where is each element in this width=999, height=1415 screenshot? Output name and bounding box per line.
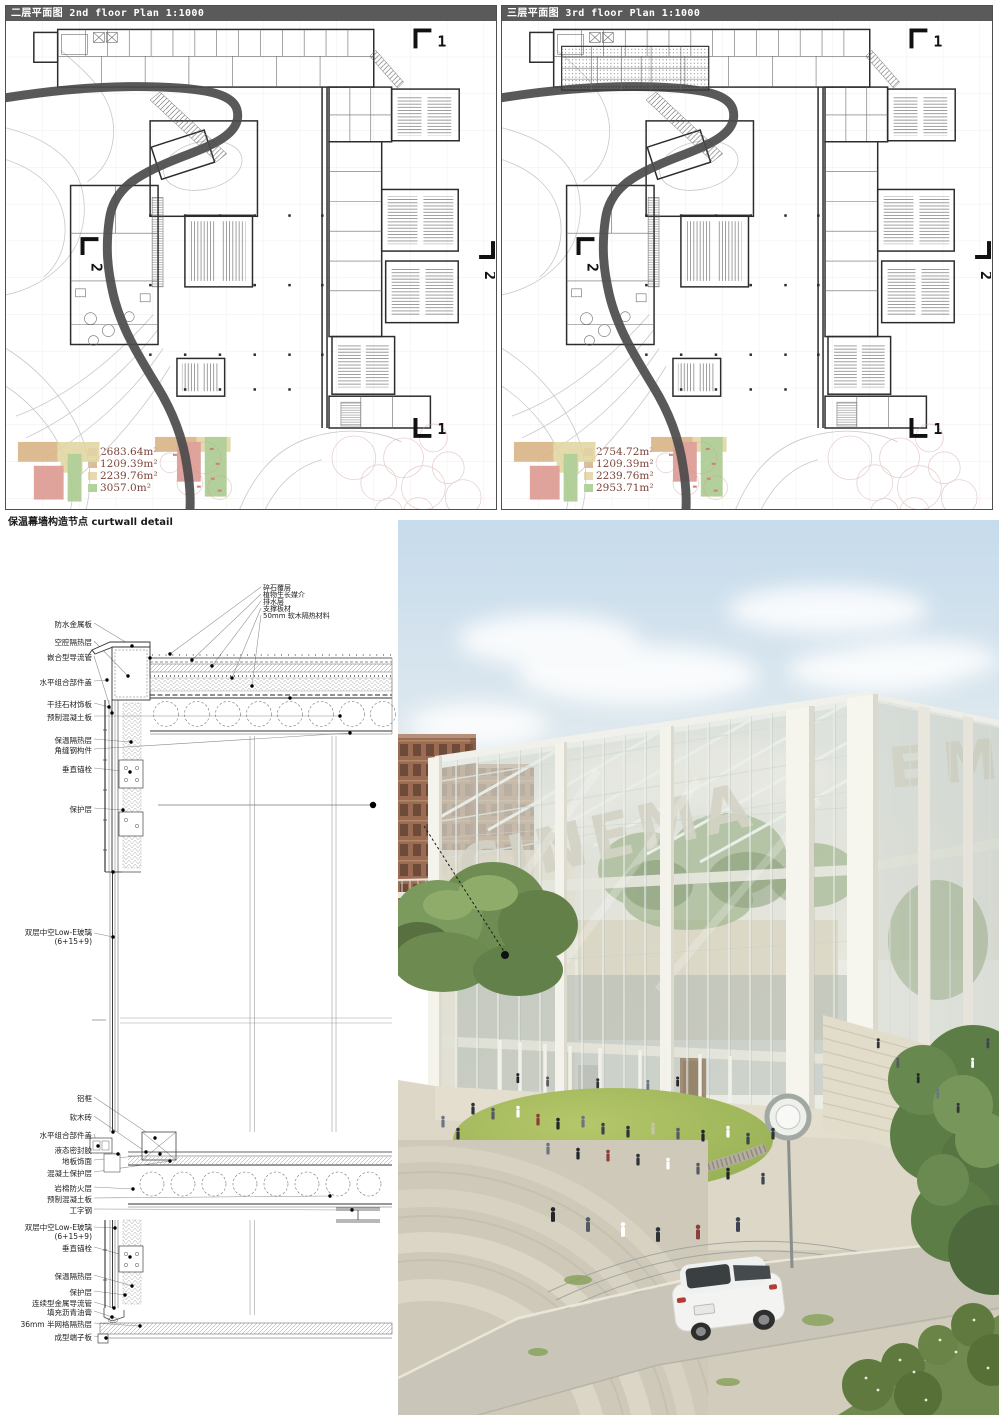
wall-assembly-upper — [103, 700, 143, 872]
plan2-drawing: 1 1 2 2 — [6, 20, 495, 509]
panel-plan-3rd-floor: 三层平面图 3rd floor Plan 1:1000 2754.72m² 12… — [501, 5, 993, 510]
detail-label: (6+15+9) — [4, 1232, 92, 1241]
legend-area-value: 2239.76m² — [596, 470, 654, 482]
section-marker-2-left: 2 — [583, 263, 601, 272]
section-marker-1-top: 1 — [933, 32, 942, 50]
legend-swatch — [88, 448, 97, 456]
detail-label: 双层中空Low-E玻璃 — [4, 928, 92, 937]
render-photo: CINEMA EMA — [398, 520, 999, 1415]
detail-label: 液态密封胶 — [4, 1146, 92, 1155]
detail-label: 水平组合部件盖 — [4, 678, 92, 687]
legend-row: 2239.76m² — [584, 470, 654, 482]
legend-swatch — [584, 448, 593, 456]
legend-area-value: 2754.72m² — [596, 446, 654, 458]
section-marker-1-top: 1 — [437, 32, 446, 50]
detail-label: 混凝土保护层 — [4, 1169, 92, 1178]
detail-label: 空腔隔热层 — [4, 638, 92, 647]
presentation-board: 二层平面图 2nd floor Plan 1:1000 2683.64m² 12… — [0, 0, 999, 1415]
panel-plan-2nd-floor: 二层平面图 2nd floor Plan 1:1000 2683.64m² 12… — [5, 5, 497, 510]
legend-area-value: 2953.71m² — [596, 482, 654, 494]
detail-label: 垂直锚栓 — [4, 1244, 92, 1253]
legend-swatch — [584, 472, 593, 480]
detail-label: 保护层 — [4, 805, 92, 814]
section-marker-1-bottom: 1 — [437, 420, 446, 438]
detail-label: 保温隔热层 — [4, 736, 92, 745]
detail-label: 地板饰面 — [4, 1157, 92, 1166]
legend-row: 2754.72m² — [584, 446, 654, 458]
detail-label: 岩棉防火层 — [4, 1184, 92, 1193]
detail-label: 角缝钢构件 — [4, 746, 92, 755]
detail-label: 软木砖 — [4, 1113, 92, 1122]
legend-row: 2239.76m² — [88, 470, 158, 482]
detail-roof-label: 50mm 软木隔热材料 — [263, 612, 395, 620]
detail-label: (6+15+9) — [4, 937, 92, 946]
legend-swatch — [88, 484, 97, 492]
detail-label: 保温隔热层 — [4, 1272, 92, 1281]
plan3-drawing: 1 1 2 2 — [502, 20, 991, 509]
detail-title: 保温幕墙构造节点 curtwall detail — [8, 513, 173, 528]
detail-label: 预制混凝土板 — [4, 713, 92, 722]
detail-label: 垂直锚栓 — [4, 765, 92, 774]
detail-label: 保护层 — [4, 1288, 92, 1297]
legend-row: 1209.39m² — [88, 458, 158, 470]
detail-label: 防水金属板 — [4, 620, 92, 629]
roof-buildup — [150, 655, 396, 734]
detail-label: 预制混凝土板 — [4, 1195, 92, 1204]
wall-assembly-lower — [98, 1220, 392, 1343]
legend-row: 3057.0m² — [88, 482, 158, 494]
legend-swatch — [584, 484, 593, 492]
legend-row: 2953.71m² — [584, 482, 654, 494]
detail-label: 铝框 — [4, 1094, 92, 1103]
legend-swatch — [88, 460, 97, 468]
legend-swatch — [88, 472, 97, 480]
section-marker-2-right: 2 — [977, 271, 991, 280]
legend-row: 2683.64m² — [88, 446, 158, 458]
section-marker-2-right: 2 — [481, 271, 495, 280]
detail-label: 干挂石材饰板 — [4, 700, 92, 709]
floor-assembly — [90, 1132, 392, 1222]
detail-label: 水平组合部件盖 — [4, 1131, 92, 1140]
curtainwall-detail-panel: 防水金属板 空腔隔热层 嵌合型导流管 水平组合部件盖 干挂石材饰板 预制混凝土板… — [0, 520, 398, 1415]
section-markers: 1 1 2 2 — [579, 30, 991, 438]
legend-area-value: 1209.39m² — [100, 458, 158, 470]
plan3-title: 三层平面图 3rd floor Plan 1:1000 — [502, 6, 992, 21]
legend-area-value: 2683.64m² — [100, 446, 158, 458]
detail-label: 嵌合型导流管 — [4, 653, 92, 662]
plan2-title: 二层平面图 2nd floor Plan 1:1000 — [6, 6, 496, 21]
plan2-legend: 2683.64m² 1209.39m² 2239.76m² 3057.0m² — [88, 446, 158, 494]
detail-label: 填充沥青油膏 — [4, 1308, 92, 1317]
detail-label: 连续型金属导流管 — [4, 1299, 92, 1308]
plan3-legend: 2754.72m² 1209.39m² 2239.76m² 2953.71m² — [584, 446, 654, 494]
render-photo-svg: CINEMA EMA — [398, 520, 999, 1415]
legend-area-value: 2239.76m² — [100, 470, 158, 482]
detail-label: 双层中空Low-E玻璃 — [4, 1223, 92, 1232]
auditorium-hatch — [562, 46, 709, 90]
legend-swatch — [584, 460, 593, 468]
detail-callout-dot — [501, 951, 509, 959]
legend-row: 1209.39m² — [584, 458, 654, 470]
legend-area-value: 3057.0m² — [100, 482, 151, 494]
detail-label: 36mm 半网格隔热层 — [4, 1320, 92, 1329]
section-markers: 1 1 2 2 — [83, 30, 495, 438]
detail-label: 工字钢 — [4, 1206, 92, 1215]
detail-label: 成型端子板 — [4, 1333, 92, 1342]
legend-area-value: 1209.39m² — [596, 458, 654, 470]
section-marker-2-left: 2 — [87, 263, 105, 272]
section-marker-1-bottom: 1 — [933, 420, 942, 438]
facade-callout-dot — [370, 802, 376, 808]
